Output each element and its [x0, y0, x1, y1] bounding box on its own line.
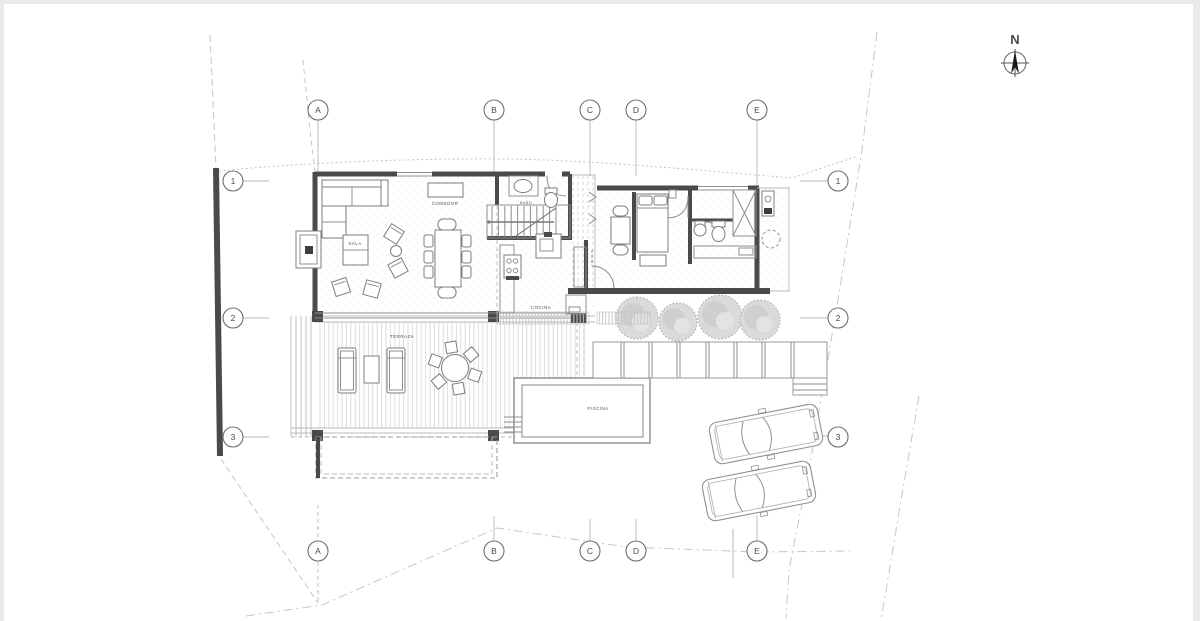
grid-label: 2 [231, 313, 236, 323]
grid-bubble-col-a-top: A [308, 100, 328, 120]
grid-bubble-row-2-right: 2 [828, 308, 848, 328]
grid-label: A [315, 546, 321, 556]
grid-bubble-row-2-left: 2 [223, 308, 243, 328]
coffee-table [343, 235, 368, 265]
terrace-label: TERRAZA [390, 334, 415, 339]
north-indicator: N [1001, 32, 1029, 77]
grid-label: 3 [836, 432, 841, 442]
armchair [363, 280, 381, 298]
water-heater [762, 191, 774, 216]
north-label: N [1010, 32, 1019, 47]
grid-label: C [587, 105, 593, 115]
grid-bubble-col-d-top: D [626, 100, 646, 120]
grid-bubble-col-d-bottom: D [626, 541, 646, 561]
grid-label: E [754, 105, 760, 115]
floor-plan-drawing: N A B C D E A B C D E 1 2 3 1 2 3 [0, 0, 1200, 621]
car [707, 398, 825, 469]
grid-label: C [587, 546, 593, 556]
sun-lounger [387, 348, 405, 393]
grid-bubble-col-e-top: E [747, 100, 767, 120]
round-sink [694, 221, 706, 236]
bed [637, 194, 668, 252]
tree [659, 303, 697, 341]
page-edges [0, 0, 1200, 621]
fireplace [296, 231, 321, 268]
grid-label: 2 [836, 313, 841, 323]
grid-bubbles-top: A B C D E [308, 100, 767, 120]
kitchen-island [536, 232, 561, 258]
grid-bubble-col-c-bottom: C [580, 541, 600, 561]
lower-deck-outline [316, 437, 497, 478]
grid-bubble-col-a-bottom: A [308, 541, 328, 561]
tree [698, 295, 742, 339]
bedroom-table-set [611, 206, 630, 255]
floor-plan-page: N A B C D E A B C D E 1 2 3 1 2 3 [0, 0, 1200, 621]
grid-label: D [633, 546, 639, 556]
pool: PISCINA [504, 378, 650, 443]
grid-bubbles-bottom: A B C D E [308, 541, 767, 561]
grid-bubble-row-3-left: 3 [223, 427, 243, 447]
grid-bubble-row-1-left: 1 [223, 171, 243, 191]
garden-steps [597, 312, 650, 324]
dining-label: COMEDOR [432, 201, 459, 206]
grid-bubble-col-b-bottom: B [484, 541, 504, 561]
grid-label: 1 [836, 176, 841, 186]
sun-lounger [338, 348, 356, 393]
side-table [391, 246, 402, 257]
toilet [545, 188, 558, 208]
bathroom-label: BAÑO [520, 200, 532, 205]
grid-label: A [315, 105, 321, 115]
grid-label: E [754, 546, 760, 556]
grid-bubble-col-c-top: C [580, 100, 600, 120]
tree [740, 300, 780, 340]
sink [514, 180, 532, 193]
side-table [364, 356, 379, 383]
round-table [442, 355, 469, 382]
sideboard [428, 183, 463, 197]
grid-bubble-col-b-top: B [484, 100, 504, 120]
car [700, 455, 818, 526]
toilet [712, 221, 725, 242]
grid-label: 1 [231, 176, 236, 186]
grid-label: B [491, 105, 497, 115]
living-label: SALA [348, 241, 362, 246]
dining-table [435, 230, 461, 287]
paver-extension [793, 378, 827, 395]
bed-bench [640, 255, 666, 266]
boundary-wall [216, 168, 220, 456]
grid-bubble-row-1-right: 1 [828, 171, 848, 191]
grid-bubble-row-3-right: 3 [828, 427, 848, 447]
grid-label: 3 [231, 432, 236, 442]
grid-bubble-col-e-bottom: E [747, 541, 767, 561]
kitchen-label: COCINA [531, 305, 552, 310]
grid-label: D [633, 105, 639, 115]
pool-label: PISCINA [587, 406, 609, 411]
grid-label: B [491, 546, 497, 556]
stove [504, 255, 521, 280]
